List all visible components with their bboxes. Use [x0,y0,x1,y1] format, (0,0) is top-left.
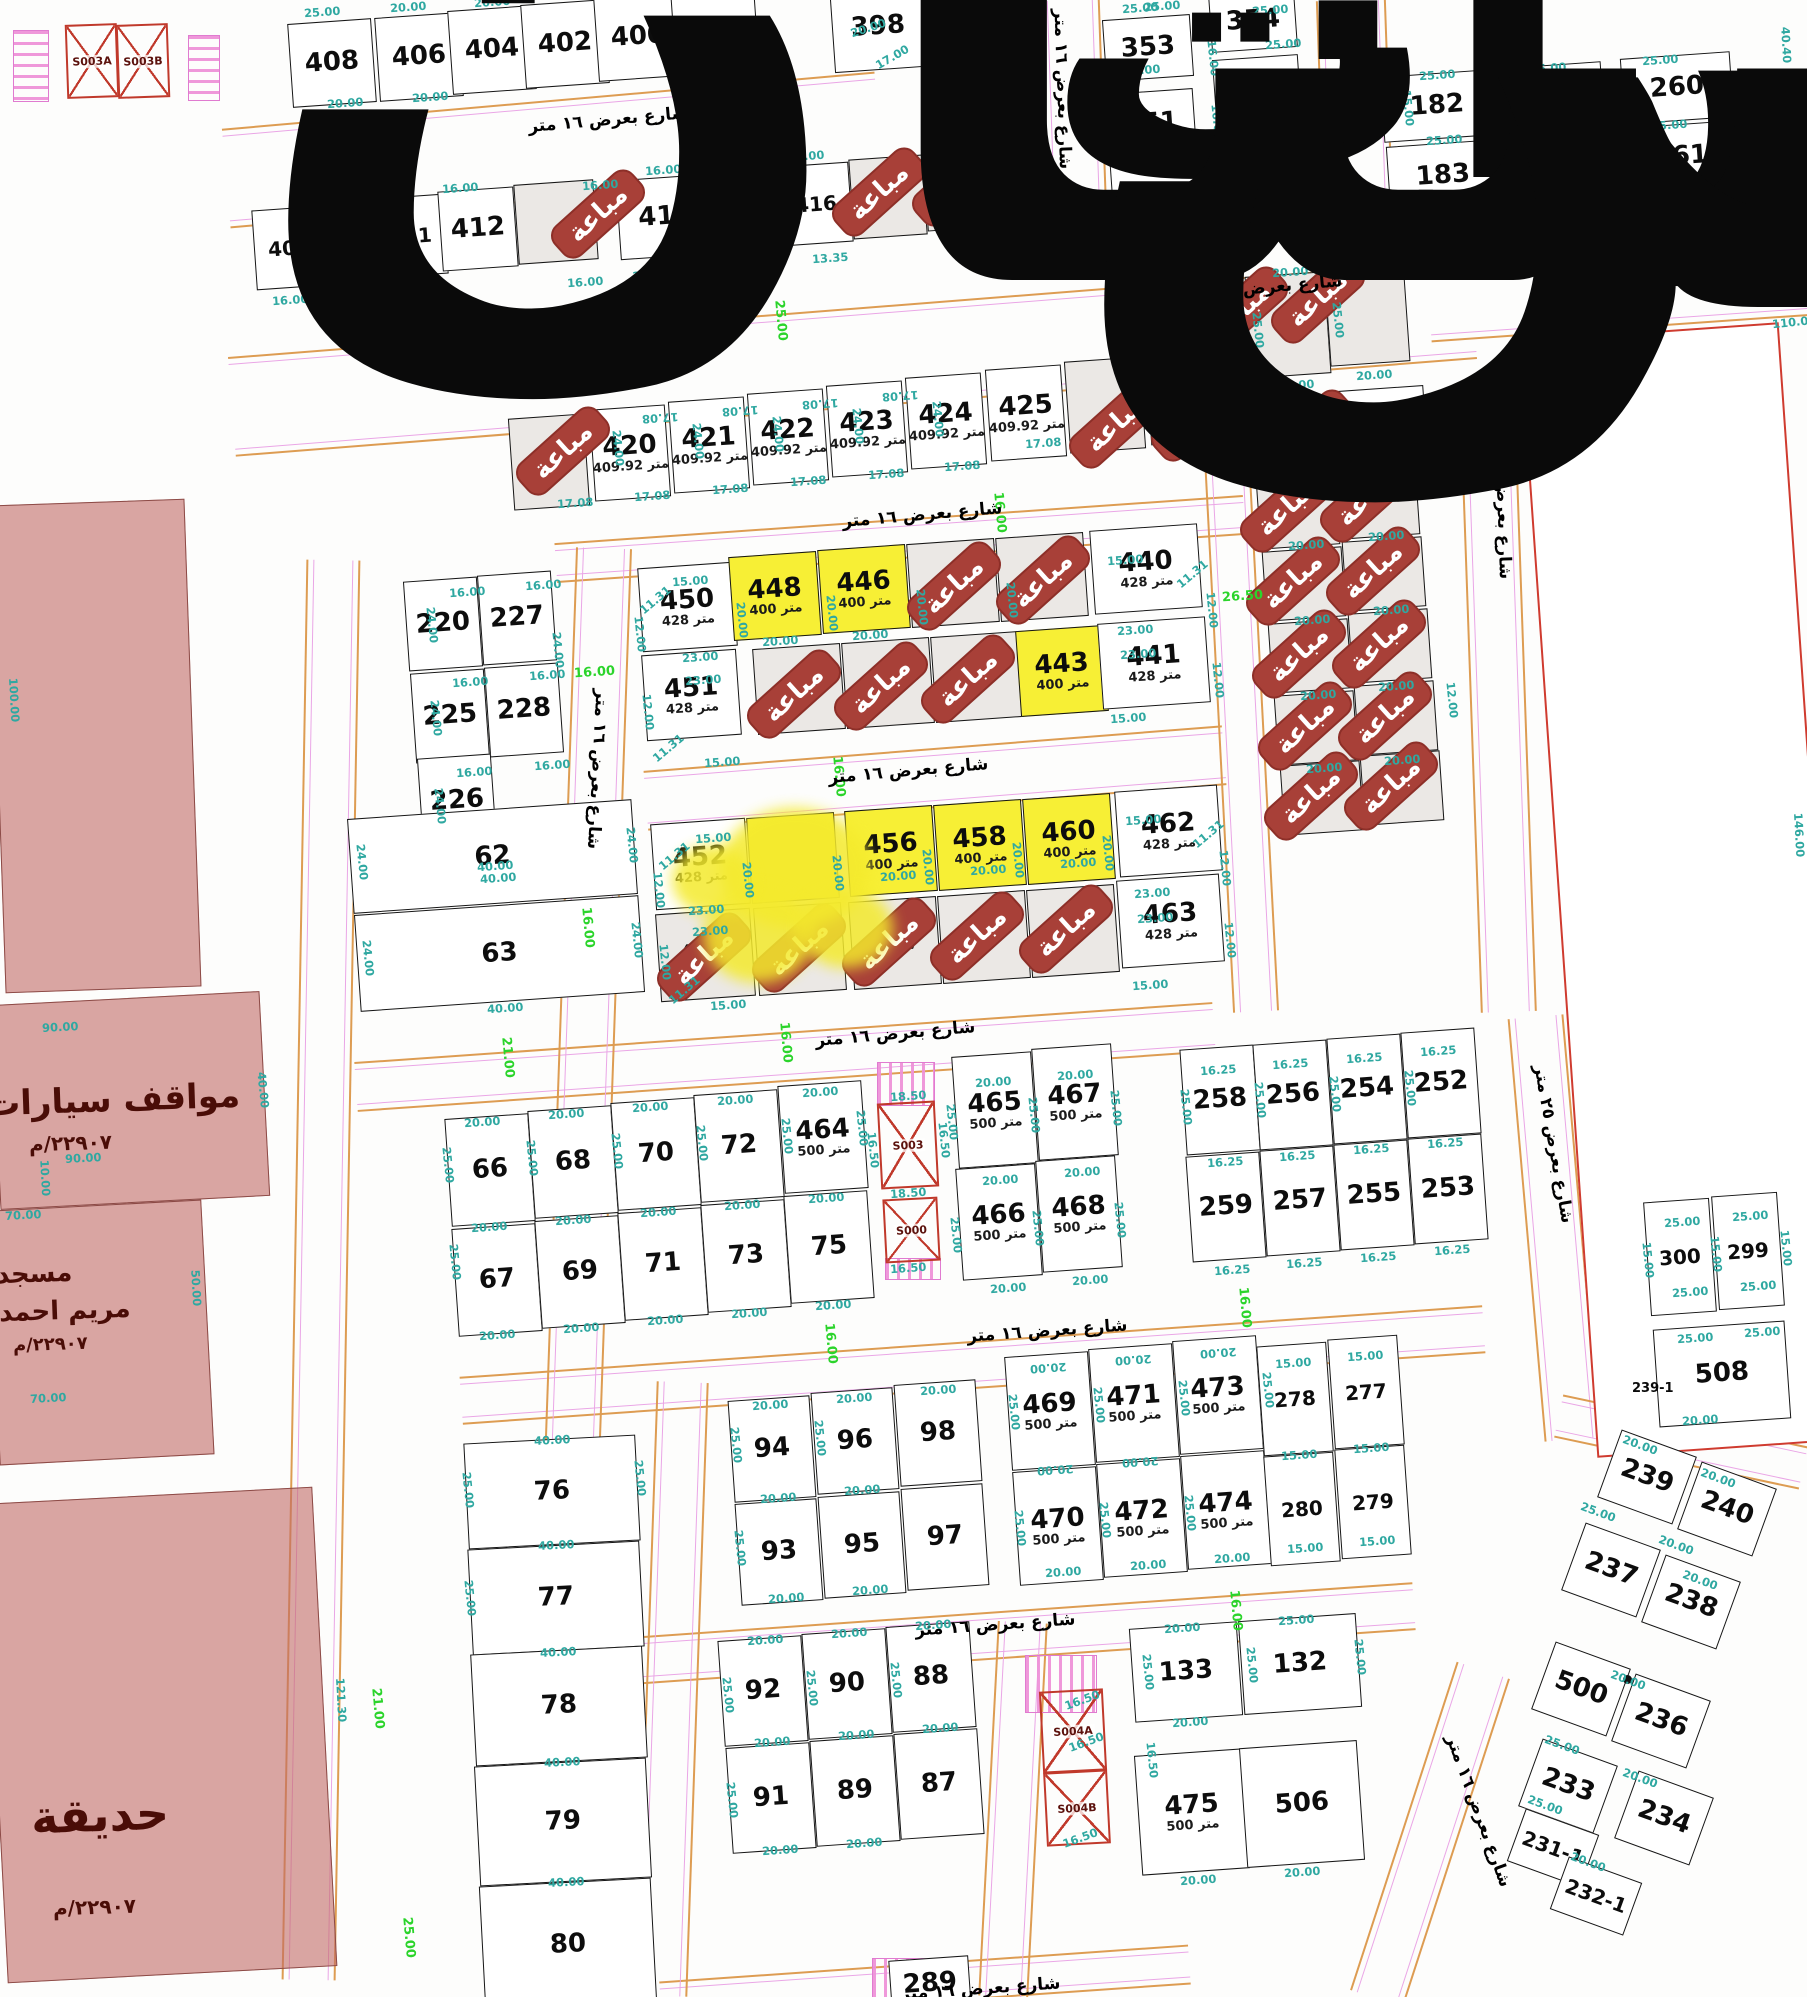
plot-63: 63 [353,895,644,1012]
dimension-label: 16.25 [1434,1242,1471,1259]
dimension-label: 16.00 [574,664,616,682]
small-id-label: 239-1 [1632,1381,1674,1396]
dimension-label: 20.00 [1200,1345,1237,1362]
dimension-label: 16.25 [1353,1141,1390,1158]
dimension-label: 16.00 [1235,1286,1254,1328]
dimension-label: 40.00 [538,1537,575,1553]
dimension-label: 23.00 [1120,646,1157,663]
dimension-label: 20.00 [717,1092,754,1109]
dimension-label: 20.00 [1368,528,1405,545]
dimension-label: 20.00 [1130,1557,1167,1574]
dimension-label: 23.00 [685,672,722,689]
dimension-label: 20.00 [831,1625,868,1642]
dimension-label: 25.00 [1740,1278,1777,1295]
dimension-label: 40.00 [534,1432,571,1448]
dimension-label: 15.00 [704,754,741,771]
dimension-label: 20.00 [846,1835,883,1852]
dimension-label: 20.00 [1115,1352,1152,1369]
dimension-label: 16.50 [1143,1741,1161,1779]
dimension-label: 20.00 [838,1727,875,1744]
plot-71: 71 [617,1207,708,1321]
dimension-label: 15.00 [710,997,747,1014]
dimension-label: 20.00 [754,1734,791,1751]
plot-79: 79 [474,1758,652,1887]
dimension-label: 40.00 [487,1000,524,1017]
dimension-label: 21.00 [368,1687,387,1729]
dimension-label: 20.00 [852,1582,889,1599]
dimension-label: 20.00 [1060,855,1097,872]
dimension-label: 20.00 [1099,834,1117,872]
dimension-label: 70.00 [5,1207,42,1223]
dimension-label: 20.00 [836,1390,873,1407]
dimension-label: 16.25 [1272,1056,1309,1073]
dimension-label: 90.00 [42,1019,79,1035]
dimension-label: 20.00 [1057,1067,1094,1084]
district-label: ثين [1055,0,1807,496]
dimension-label: 23.00 [1134,885,1171,902]
public-zone [0,499,201,994]
dimension-label: 25.00 [1111,1201,1129,1239]
dimension-label: 16.00 [821,1322,840,1364]
dimension-label: 25.00 [1732,1208,1769,1225]
dimension-label: 20.00 [920,1382,957,1399]
dimension-label: 15.00 [1359,1533,1396,1550]
dimension-label: 25.00 [1579,1499,1618,1525]
dimension-label: 20.00 [880,868,917,885]
plot-236: 236 [1611,1673,1711,1768]
plot-80: 80 [479,1877,657,1997]
dimension-label: 24.00 [549,631,567,669]
dimension-label: 20.00 [1045,1564,1082,1581]
dimension-label: 20.00 [752,1397,789,1414]
dimension-label: 20.00 [844,1482,881,1499]
dimension-label: 25.00 [1107,1089,1125,1127]
dimension-label: 10.00 [37,1159,53,1196]
public-zone [0,1487,337,1984]
dimension-label: 16.00 [456,764,493,781]
crossed-box-S003B: S003B [116,23,171,99]
zone-label: مريم احمد [0,1294,132,1329]
zone-label: ٢٢٩٠٧/م [12,1333,87,1357]
zone-label: مسجد [0,1258,73,1291]
dimension-label: 20.00 [1009,841,1027,879]
plot-69: 69 [534,1215,625,1329]
dimension-label: 16.25 [1360,1249,1397,1266]
dimension-label: 20.00 [1306,760,1343,777]
dimension-label: 40.00 [540,1644,577,1660]
dimension-label: 25.00 [1278,1612,1315,1629]
zone-label: ٢٢٩٠٧/م [28,1130,112,1157]
dimension-label: 16.25 [1420,1043,1457,1060]
dimension-label: 23.00 [1117,622,1154,639]
plot-506: 506 [1239,1740,1365,1868]
dimension-label: 20.00 [632,1099,669,1116]
dimension-label: 21.00 [498,1036,517,1078]
plot-87: 87 [893,1728,984,1840]
dimension-label: 20.00 [1288,537,1325,554]
dimension-label: 17.08 [557,495,594,512]
dimension-label: 16.25 [1200,1062,1237,1079]
dimension-label: 25.00 [1664,1214,1701,1231]
plot-67: 67 [451,1223,542,1337]
dimension-label: 50.00 [188,1269,204,1306]
dimension-label: 24.00 [628,921,646,959]
plot-77: 77 [467,1541,644,1656]
plot-75: 75 [783,1190,874,1304]
dimension-label: 20.00 [548,1106,585,1123]
dimension-label: 17.08 [944,458,981,475]
dimension-label: 15.00 [672,573,709,590]
plot-68: 68 [527,1105,618,1219]
dimension-label: 17.08 [634,488,671,505]
zone-label: حديقة [30,1786,170,1845]
dimension-label: 20.00 [479,1327,516,1344]
dimension-label: 20.00 [647,1312,684,1329]
dimension-label: 23.00 [682,649,719,666]
plot-97: 97 [901,1483,990,1590]
crossed-box-S003A: S003A [65,23,120,99]
hatch-strip [188,35,220,101]
marker-smudge [798,888,893,968]
dimension-label: 20.00 [1164,1620,1201,1637]
dimension-label: 25.00 [1351,1638,1369,1676]
dimension-label: 20.00 [1284,1864,1321,1881]
zone-label: ٢٢٩٠٧/م [52,1894,136,1921]
dimension-label: 18.50 [890,1185,927,1202]
plot-93: 93 [735,1498,824,1605]
dimension-label: 18.50 [890,1088,927,1105]
dimension-label: 16.25 [1427,1135,1464,1152]
dimension-label: 20.00 [802,1084,839,1101]
dimension-label: 20.00 [731,1305,768,1322]
dimension-label: 20.00 [1384,752,1421,769]
dimension-label: 20.00 [1064,1164,1101,1181]
dimension-label: 20.00 [1214,1550,1251,1567]
plot-255: 255 [1333,1140,1414,1251]
dimension-label: 40.00 [254,1071,272,1109]
dimension-label: 15.00 [1110,710,1147,727]
dimension-label: 17.08 [790,473,827,490]
dimension-label: 20.00 [852,627,889,644]
plot-443: 443400 متر [1015,625,1109,717]
dimension-label: 20.00 [1294,612,1331,629]
dimension-label: 20.00 [1682,1412,1719,1429]
hatch-strip [13,30,49,102]
dimension-label: 15.00 [1132,977,1169,994]
dimension-label: 20.00 [975,1074,1012,1091]
dimension-label: 20.00 [922,1720,959,1737]
dimension-label: 20.00 [808,1190,845,1207]
dimension-label: 23.00 [692,923,729,940]
dimension-label: 16.00 [449,584,486,601]
dimension-label: 20.00 [1180,1872,1217,1889]
dimension-label: 20.00 [760,1490,797,1507]
dimension-label: 100.00 [6,677,22,722]
dimension-label: 16.25 [1207,1154,1244,1171]
dimension-label: 20.00 [762,633,799,650]
dimension-label: 25.00 [631,1459,649,1497]
plot-237: 237 [1561,1522,1661,1617]
public-zone [0,1199,214,1465]
plot-89: 89 [809,1735,900,1847]
dimension-label: 20.00 [982,1172,1019,1189]
dimension-label: 23.00 [688,902,725,919]
dimension-label: 12.00 [1443,681,1461,719]
dimension-label: 15.00 [1275,1355,1312,1372]
plot-253: 253 [1407,1134,1488,1245]
dimension-label: 17.08 [712,481,749,498]
dimension-label: 20.00 [1072,1272,1109,1289]
plot-73: 73 [700,1199,791,1313]
dimension-label: 20.00 [640,1204,677,1221]
plot-500: 500 [1531,1641,1631,1736]
map-canvas[interactable]: 4084064044024003983964094104114124144154… [0,0,1807,1997]
dimension-label: 40.00 [480,870,517,887]
dimension-label: 20.00 [970,862,1007,879]
dimension-label: 20.00 [1172,1714,1209,1731]
crossed-box-S000: S000 [882,1197,940,1264]
dimension-label: 20.00 [1030,1360,1067,1377]
dimension-label: 17.08 [868,466,905,483]
crossed-box-S003: S003 [877,1101,939,1190]
dimension-label: 25.00 [1744,1324,1781,1341]
dimension-label: 25.00 [1672,1284,1709,1301]
dimension-label: 20.00 [1373,602,1410,619]
dimension-label: 20.00 [762,1842,799,1859]
dimension-label: 20.00 [1122,1454,1159,1471]
dimension-label: 20.00 [747,1632,784,1649]
dimension-label: 25.00 [399,1916,418,1958]
dimension-label: 20.00 [471,1219,508,1236]
dimension-label: 20.00 [1378,678,1415,695]
dimension-label: 146.00 [1791,812,1807,857]
dimension-label: 20.00 [1037,1462,1074,1479]
dimension-label: 20.00 [724,1197,761,1214]
dimension-label: 70.00 [30,1390,67,1406]
dimension-label: 20.00 [1300,687,1337,704]
dimension-label: 25.00 [1677,1330,1714,1347]
dimension-label: 20.00 [768,1590,805,1607]
plot-76: 76 [463,1435,640,1550]
dimension-label: 20.00 [990,1280,1027,1297]
dimension-label: 20.00 [1657,1532,1696,1558]
plot-467: 467500 متر [1031,1043,1119,1160]
dimension-label: 15.00 [1287,1540,1324,1557]
dimension-label: 16.00 [452,674,489,691]
dimension-label: 121.30 [333,1677,349,1722]
dimension-label: 16.00 [529,667,566,684]
dimension-label: 40.00 [544,1754,581,1770]
dimension-label: 16.25 [1279,1148,1316,1165]
plot-234: 234 [1614,1770,1714,1865]
dimension-label: 16.00 [534,757,571,774]
dimension-label: 23.00 [1137,910,1174,927]
dimension-label: 15.00 [1353,1440,1390,1457]
dimension-label: 15.00 [1281,1447,1318,1464]
dimension-label: 20.00 [815,1297,852,1314]
dimension-label: 15.00 [695,830,732,847]
dimension-label: 16.25 [1214,1262,1251,1279]
dimension-label: 16.00 [525,577,562,594]
dimension-label: 15.00 [1107,552,1144,569]
plot-78: 78 [470,1646,648,1767]
dimension-label: 15.00 [1125,812,1162,829]
dimension-label: 15.00 [1347,1348,1384,1365]
dimension-label: 16.50 [890,1260,927,1277]
dimension-label: 16.25 [1346,1050,1383,1067]
dimension-label: 20.00 [464,1114,501,1131]
plot-66: 66 [444,1113,535,1227]
dimension-label: 40.00 [548,1874,585,1890]
dimension-label: 26.50 [1222,588,1264,606]
dimension-label: 16.25 [1286,1255,1323,1272]
dimension-label: 24.00 [623,826,641,864]
dimension-label: 20.00 [563,1320,600,1337]
dimension-label: 16.00 [776,1021,795,1063]
plot-441: 441428 متر [1097,616,1211,709]
dimension-label: 20.00 [555,1212,592,1229]
